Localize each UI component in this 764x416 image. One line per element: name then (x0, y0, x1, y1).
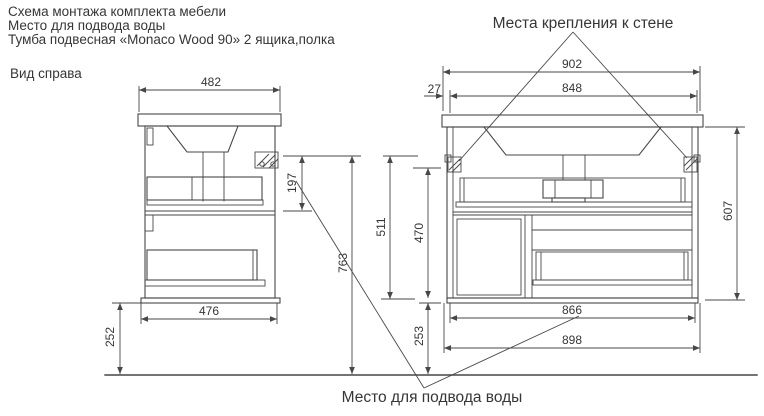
mounting-scheme-page: Схема монтажа комплекта мебели Место для… (0, 0, 764, 416)
front-countertop (442, 115, 703, 127)
dim-label-476: 476 (199, 304, 219, 318)
side-basin (167, 126, 238, 152)
dim-label-511: 511 (374, 217, 388, 236)
dim-label-866: 866 (562, 303, 582, 317)
front-cabinet-body (447, 127, 698, 298)
water-supply-label: Место для подвода воды (342, 389, 523, 406)
dim-label-898: 898 (562, 333, 582, 347)
dim-label-607: 607 (721, 201, 735, 221)
water-supply-leader-left (296, 181, 424, 388)
dim-label-253: 253 (412, 326, 426, 346)
side-upper-drawer (147, 177, 262, 200)
wall-mount-label: Места крепления к стене (493, 15, 674, 32)
header-line-3: Тумба подвесная «Monaco Wood 90» 2 ящика… (8, 32, 335, 47)
side-lower-drawer-rail (145, 280, 265, 286)
header-line-1: Схема монтажа комплекта мебели (8, 4, 226, 19)
header-line-2: Место для подвода воды (8, 18, 165, 33)
side-bottom-slab (141, 298, 280, 303)
dim-label-197: 197 (285, 173, 299, 193)
dim-label-902: 902 (562, 57, 582, 71)
front-upper-drawer-rail (456, 202, 692, 207)
side-hinge-detail (145, 215, 153, 231)
dim-label-763: 763 (336, 253, 350, 273)
dim-label-27: 27 (428, 82, 442, 96)
siphon-base (552, 198, 585, 202)
side-lower-drawer (147, 250, 257, 280)
front-lower-drawer-rail (533, 280, 692, 285)
front-shelf-compartment (457, 219, 521, 295)
front-lower-drawer (536, 252, 688, 280)
side-countertop (138, 114, 281, 126)
bracket-hatch (684, 157, 697, 170)
water-supply-leader-right (424, 316, 579, 388)
front-view-drawing (442, 115, 703, 303)
front-view-dimensions: 902 848 27 511 470 253 607 866 898 (374, 57, 745, 374)
side-panel-detail (147, 128, 153, 145)
wall-mount-leader-left (459, 32, 573, 161)
side-view-label: Вид справа (10, 66, 82, 81)
front-basin (484, 127, 661, 155)
side-view-dimensions: 482 476 197 763 252 (103, 75, 361, 374)
dim-label-482: 482 (201, 75, 221, 89)
dim-label-470: 470 (412, 223, 426, 243)
side-upper-drawer-rail (147, 200, 263, 205)
bracket-screw (260, 162, 264, 166)
technical-drawing: Схема монтажа комплекта мебели Место для… (0, 0, 764, 416)
dim-label-252: 252 (103, 327, 117, 347)
wall-mount-leader-right (573, 32, 687, 158)
front-siphon (543, 180, 603, 202)
dim-label-848: 848 (562, 81, 582, 95)
side-view-drawing (138, 114, 281, 303)
siphon-body (543, 180, 603, 198)
header-block: Схема монтажа комплекта мебели Место для… (8, 4, 335, 81)
